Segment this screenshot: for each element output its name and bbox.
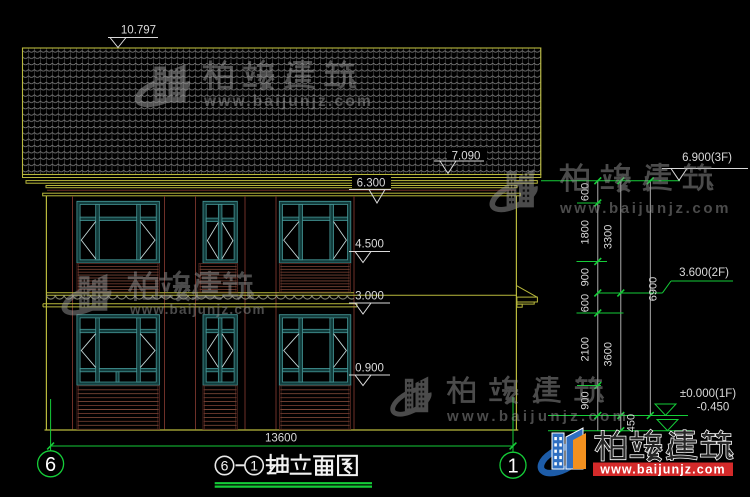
svg-text:±0.000(1F): ±0.000(1F) — [680, 388, 736, 400]
svg-text:600: 600 — [580, 183, 592, 201]
svg-text:0.900: 0.900 — [355, 363, 384, 375]
svg-text:1800: 1800 — [580, 220, 592, 244]
svg-text:www.baijunjz.com: www.baijunjz.com — [203, 93, 373, 110]
svg-text:6.300: 6.300 — [357, 178, 386, 190]
svg-text:www.baijunjz.com: www.baijunjz.com — [559, 200, 731, 217]
svg-text:13600: 13600 — [265, 433, 297, 445]
svg-text:900: 900 — [580, 268, 592, 286]
svg-text:4.500: 4.500 — [355, 239, 384, 251]
svg-text:-0.450: -0.450 — [697, 402, 730, 414]
svg-text:600: 600 — [580, 294, 592, 312]
svg-text:www.baijunjz.com: www.baijunjz.com — [599, 463, 725, 477]
svg-text:3300: 3300 — [603, 225, 615, 249]
svg-text:2100: 2100 — [580, 337, 592, 361]
svg-text:10.797: 10.797 — [121, 25, 156, 37]
svg-text:www.baijunjz.com: www.baijunjz.com — [129, 302, 266, 317]
svg-text:6900: 6900 — [648, 277, 660, 301]
svg-text:www.baijunjz.com: www.baijunjz.com — [446, 408, 629, 425]
svg-text:6: 6 — [45, 454, 56, 476]
svg-text:6: 6 — [221, 458, 229, 474]
svg-text:3.000: 3.000 — [355, 291, 384, 303]
svg-text:3.600(2F): 3.600(2F) — [679, 267, 729, 279]
svg-text:6.900(3F): 6.900(3F) — [682, 152, 732, 164]
svg-text:1: 1 — [250, 458, 258, 474]
svg-text:3600: 3600 — [603, 342, 615, 366]
svg-text:1: 1 — [507, 455, 518, 477]
